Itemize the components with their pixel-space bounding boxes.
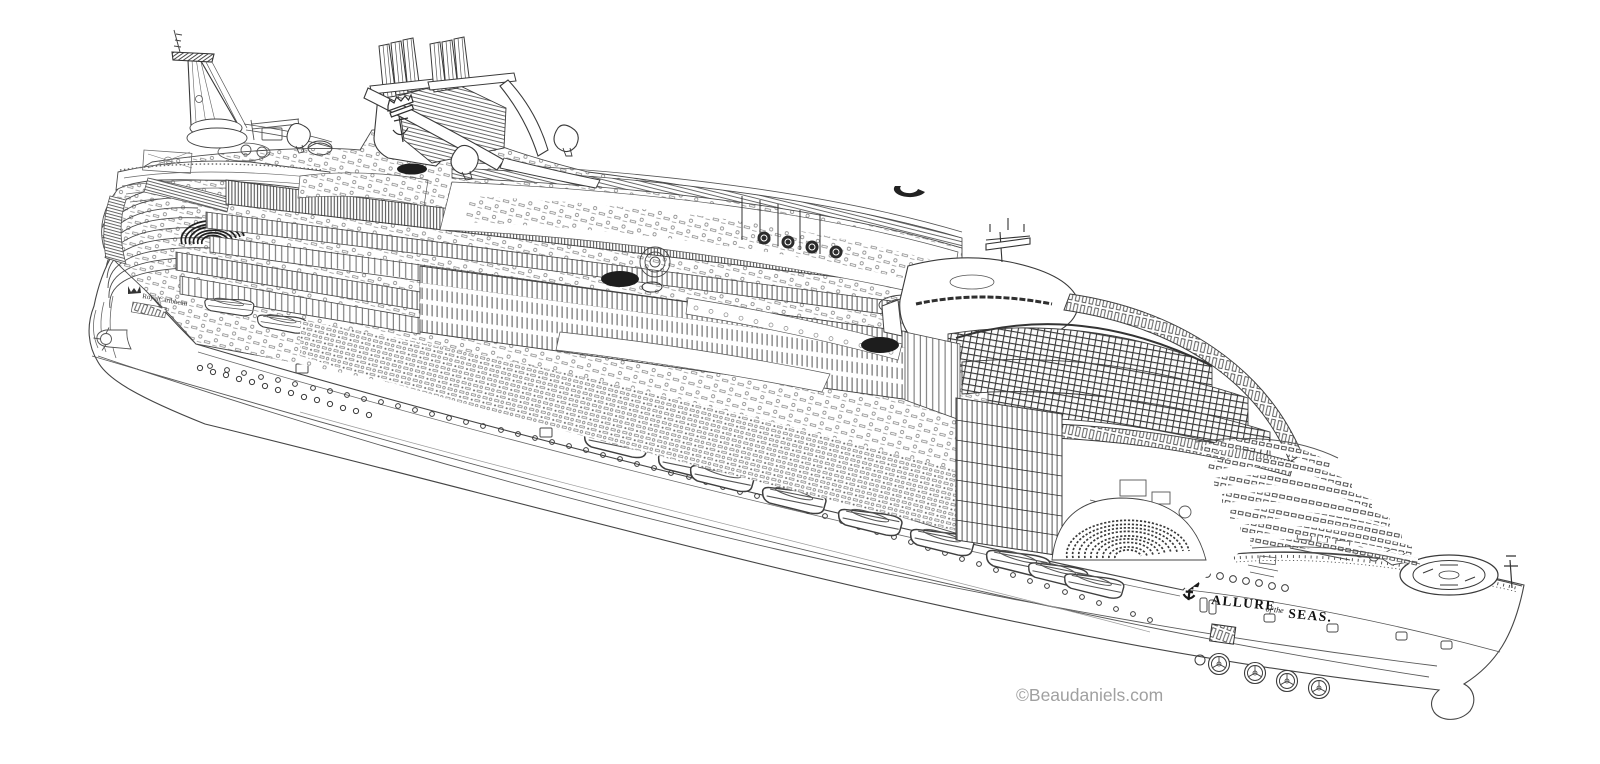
svg-text:©Beaudaniels.com: ©Beaudaniels.com bbox=[1016, 685, 1163, 705]
svg-text:of the: of the bbox=[1265, 604, 1284, 615]
